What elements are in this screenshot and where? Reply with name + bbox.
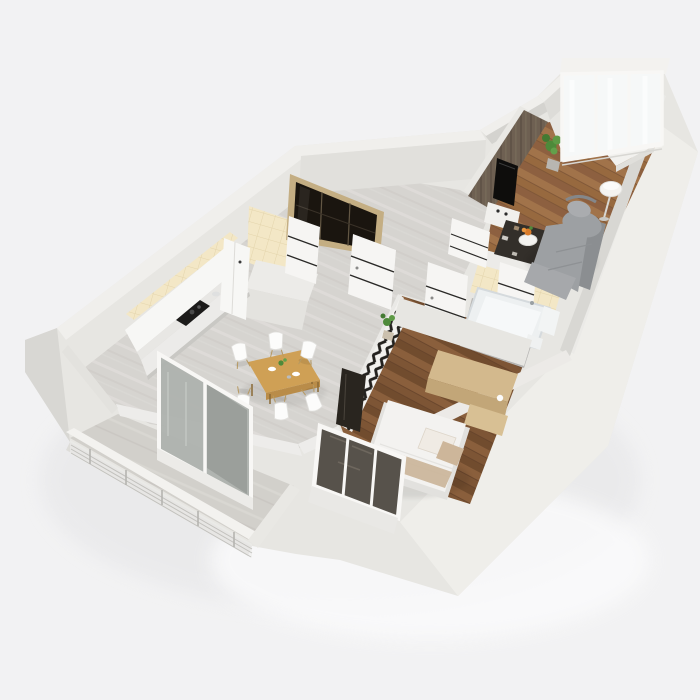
kitchen-sink xyxy=(212,292,220,297)
dining-chair xyxy=(269,332,284,357)
table-lamp xyxy=(497,395,503,401)
floorplan-svg xyxy=(0,0,700,700)
fridge-handle xyxy=(239,261,242,264)
dining-chair xyxy=(273,395,289,421)
door xyxy=(285,216,320,284)
coffee-table xyxy=(519,235,537,246)
vase xyxy=(287,375,291,378)
bath-faucet xyxy=(530,301,534,305)
floorplan-render xyxy=(0,0,700,700)
